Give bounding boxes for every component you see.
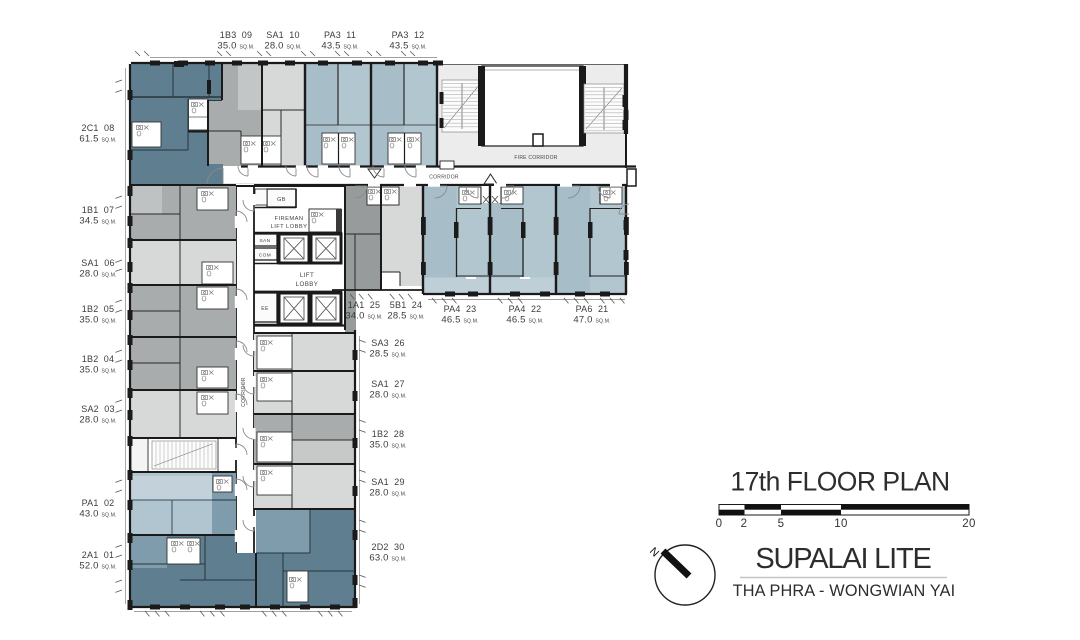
svg-text:SAN: SAN xyxy=(259,238,270,244)
svg-text:LIFT: LIFT xyxy=(300,272,314,279)
svg-text:1B3 09: 1B3 09 xyxy=(220,30,252,40)
svg-text:SA3 26: SA3 26 xyxy=(371,338,404,348)
svg-text:2: 2 xyxy=(741,518,748,530)
svg-text:1B2 04: 1B2 04 xyxy=(82,354,114,364)
svg-text:PA1 02: PA1 02 xyxy=(82,498,115,508)
svg-text:2C1 08: 2C1 08 xyxy=(82,123,115,133)
svg-text:1B1 07: 1B1 07 xyxy=(82,205,114,215)
svg-text:5: 5 xyxy=(778,518,785,530)
svg-text:FIREMAN: FIREMAN xyxy=(275,216,304,222)
svg-text:SA2 03: SA2 03 xyxy=(81,404,114,414)
svg-text:PA4 23: PA4 23 xyxy=(444,304,477,314)
svg-text:COM: COM xyxy=(259,253,271,259)
svg-text:5B1 24: 5B1 24 xyxy=(390,300,422,310)
svg-text:CORRIDOR: CORRIDOR xyxy=(241,377,247,407)
svg-text:SA1 29: SA1 29 xyxy=(371,477,404,487)
svg-text:PA3 12: PA3 12 xyxy=(392,30,425,40)
svg-text:0: 0 xyxy=(716,518,723,530)
svg-text:THA PHRA - WONGWIAN YAI: THA PHRA - WONGWIAN YAI xyxy=(733,582,956,600)
svg-text:SA1 06: SA1 06 xyxy=(81,258,114,268)
svg-text:LIFT LOBBY: LIFT LOBBY xyxy=(271,224,308,230)
svg-text:SA1 27: SA1 27 xyxy=(371,379,404,389)
svg-text:10: 10 xyxy=(834,518,848,530)
svg-text:2D2 30: 2D2 30 xyxy=(372,542,405,552)
svg-text:PA3 11: PA3 11 xyxy=(324,30,356,40)
svg-text:LOBBY: LOBBY xyxy=(296,281,319,288)
svg-text:SA1 10: SA1 10 xyxy=(266,30,299,40)
svg-text:SUPALAI LITE: SUPALAI LITE xyxy=(755,543,931,575)
svg-text:1B2 05: 1B2 05 xyxy=(82,304,114,314)
svg-text:2A1 01: 2A1 01 xyxy=(82,550,114,560)
svg-text:PA4 22: PA4 22 xyxy=(509,304,542,314)
svg-text:PA6 21: PA6 21 xyxy=(576,304,609,314)
svg-text:GB: GB xyxy=(277,197,286,203)
svg-text:1A1 25: 1A1 25 xyxy=(348,300,380,310)
svg-text:20: 20 xyxy=(962,518,976,530)
svg-text:1B2 28: 1B2 28 xyxy=(372,429,404,439)
svg-text:EE: EE xyxy=(261,306,269,312)
svg-text:CORRIDOR: CORRIDOR xyxy=(429,175,459,181)
svg-text:17th FLOOR PLAN: 17th FLOOR PLAN xyxy=(730,467,949,497)
svg-text:FIRE CORRIDOR: FIRE CORRIDOR xyxy=(514,155,557,161)
